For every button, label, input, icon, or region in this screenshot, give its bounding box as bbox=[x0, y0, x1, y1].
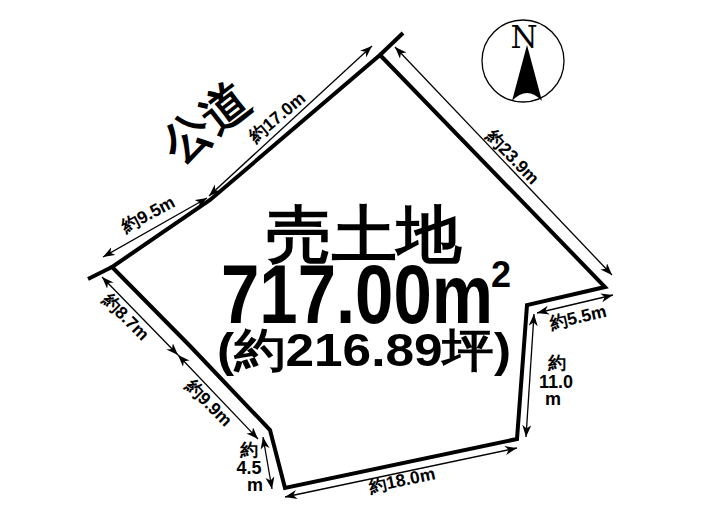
dimension-label: m bbox=[247, 475, 263, 495]
dimension-18-0m: 約18.0m bbox=[285, 448, 517, 497]
dimension-label: 約 bbox=[547, 353, 566, 373]
text-annotations: 公道売土地717.00m2(約216.89坪) bbox=[150, 72, 511, 376]
dimension-line bbox=[526, 314, 534, 437]
road-label: 公道 bbox=[150, 72, 260, 174]
parcel-area-sqm-superscript: 2 bbox=[491, 254, 511, 295]
dimension-line bbox=[263, 437, 272, 489]
parcel-area-tsubo: (約216.89坪) bbox=[217, 324, 511, 376]
compass-north-label: N bbox=[510, 19, 537, 55]
dimension-4-5m: 約4.5m bbox=[236, 437, 272, 495]
dimension-label: 約5.5m bbox=[547, 301, 608, 334]
dimension-8-7m: 約8.7m bbox=[98, 277, 178, 355]
land-plot-diagram: 約9.5m約17.0m約23.9m約5.5m約11.0m約18.0m約4.5m約… bbox=[0, 0, 705, 525]
dimension-9-5m: 約9.5m bbox=[103, 192, 207, 257]
dimension-11-0m: 約11.0m bbox=[526, 314, 573, 437]
dimension-label: 約 bbox=[239, 440, 258, 460]
compass: N bbox=[482, 19, 564, 102]
boundary-overshoot-line bbox=[88, 267, 112, 279]
dimension-label: 約23.9m bbox=[482, 125, 544, 188]
dimension-label: 約8.7m bbox=[98, 289, 153, 344]
dimension-label: m bbox=[545, 389, 561, 409]
